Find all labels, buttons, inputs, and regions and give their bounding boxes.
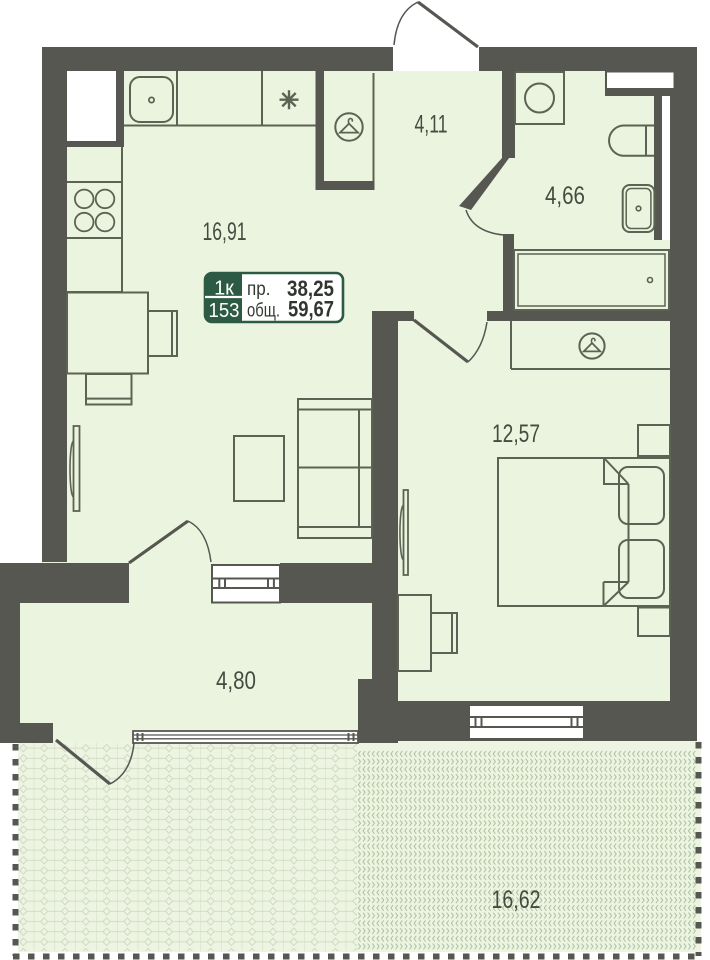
svg-text:59,67: 59,67 xyxy=(288,297,334,322)
svg-text:пр.: пр. xyxy=(247,279,271,300)
svg-text:12,57: 12,57 xyxy=(492,420,540,448)
svg-text:общ.: общ. xyxy=(247,301,280,322)
svg-text:16,62: 16,62 xyxy=(492,886,541,914)
svg-text:4,80: 4,80 xyxy=(216,667,256,695)
svg-text:1к: 1к xyxy=(214,278,234,300)
svg-text:153: 153 xyxy=(209,300,240,322)
svg-text:16,91: 16,91 xyxy=(203,218,247,246)
svg-text:4,66: 4,66 xyxy=(545,182,585,210)
svg-text:4,11: 4,11 xyxy=(415,111,448,139)
